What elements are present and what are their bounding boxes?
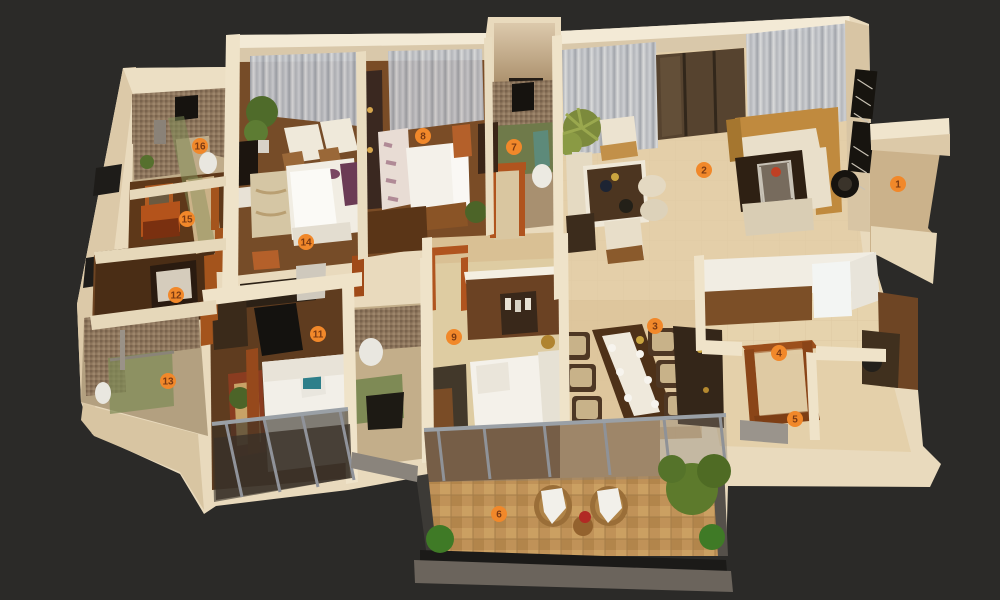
svg-text:1: 1 — [895, 180, 901, 191]
svg-text:16: 16 — [194, 142, 206, 153]
svg-text:15: 15 — [181, 215, 193, 226]
svg-text:14: 14 — [300, 238, 312, 249]
svg-text:12: 12 — [170, 291, 182, 302]
svg-text:5: 5 — [792, 415, 798, 426]
svg-text:9: 9 — [451, 333, 457, 344]
svg-text:4: 4 — [776, 349, 782, 360]
svg-text:2: 2 — [701, 166, 707, 177]
svg-text:7: 7 — [511, 143, 517, 154]
svg-text:11: 11 — [313, 330, 324, 341]
svg-text:3: 3 — [652, 322, 658, 333]
svg-text:8: 8 — [420, 132, 426, 143]
svg-text:6: 6 — [496, 510, 502, 521]
svg-text:13: 13 — [162, 377, 174, 388]
